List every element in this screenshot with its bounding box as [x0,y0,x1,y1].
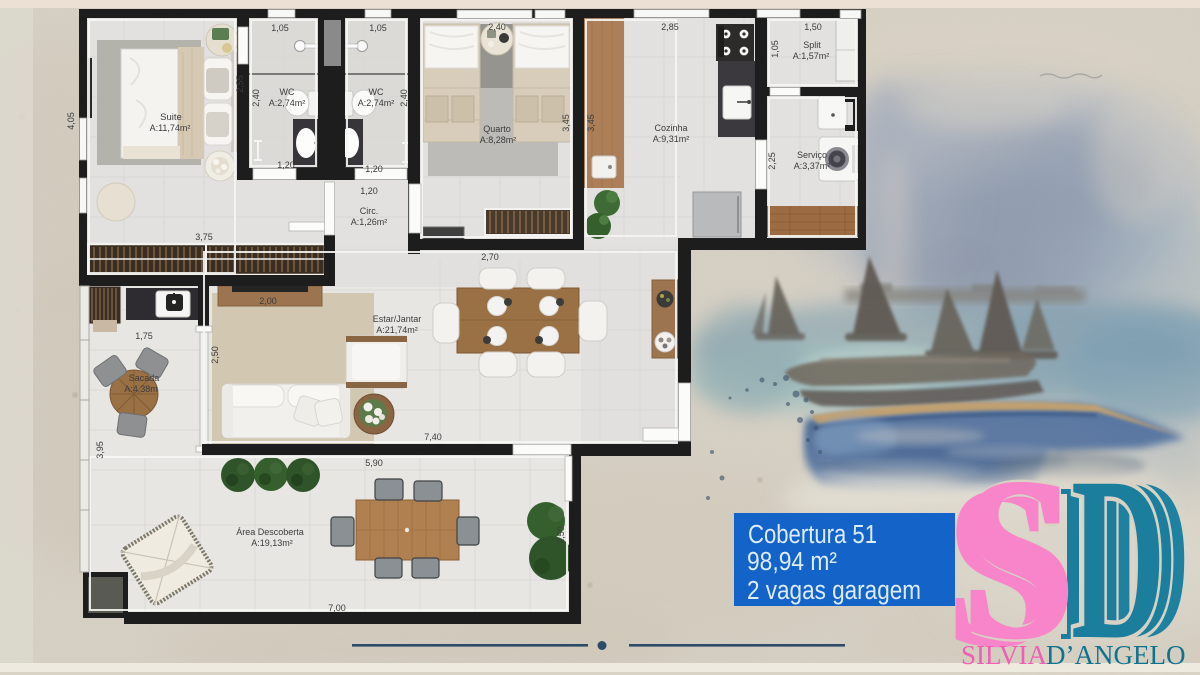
svg-text:2,50: 2,50 [210,346,220,364]
svg-text:1,05: 1,05 [369,23,387,33]
svg-text:1,75: 1,75 [135,331,153,341]
svg-text:3,75: 3,75 [195,232,213,242]
svg-text:1,05: 1,05 [271,23,289,33]
svg-text:2,00: 2,00 [259,296,277,306]
svg-text:1,05: 1,05 [770,40,780,58]
svg-text:1,20: 1,20 [277,160,295,170]
svg-text:SILVIA: SILVIA [961,640,1048,670]
svg-text:A:11,74m²: A:11,74m² [150,123,191,133]
svg-text:WC: WC [280,87,295,97]
svg-text:A:21,74m²: A:21,74m² [376,325,418,335]
svg-text:A:2,74m²: A:2,74m² [358,98,395,108]
svg-text:WC: WC [369,87,384,97]
svg-text:1,20: 1,20 [360,186,378,196]
svg-text:3,95: 3,95 [95,441,105,459]
svg-text:Circ.: Circ. [360,206,379,216]
svg-text:Cozinha: Cozinha [654,123,687,133]
svg-text:3,45: 3,45 [586,114,596,132]
svg-text:Cobertura 51: Cobertura 51 [748,521,877,549]
svg-text:A:3,37m²: A:3,37m² [794,161,831,171]
svg-text:2,85: 2,85 [661,22,679,32]
svg-text:4,05: 4,05 [66,112,76,130]
svg-text:Suite: Suite [160,112,182,123]
svg-text:Área Descoberta: Área Descoberta [236,527,304,537]
svg-text:A:1,57m²: A:1,57m² [793,51,830,61]
svg-text:A:1,26m²: A:1,26m² [351,217,388,227]
svg-text:Quarto: Quarto [483,124,511,134]
svg-text:2,70: 2,70 [481,252,499,262]
svg-text:3,45: 3,45 [561,114,571,132]
svg-text:1,50: 1,50 [804,22,822,32]
svg-text:98,94 m²: 98,94 m² [747,548,837,576]
svg-text:2,40: 2,40 [488,22,506,32]
svg-text:2,40: 2,40 [251,89,261,107]
svg-text:2 vagas garagem: 2 vagas garagem [747,577,921,605]
svg-text:2,25: 2,25 [767,152,777,170]
svg-text:A:19,13m²: A:19,13m² [251,538,293,548]
svg-text:D: D [1071,430,1166,675]
svg-text:5,90: 5,90 [365,458,383,468]
svg-text:D’ANGELO: D’ANGELO [1046,640,1185,670]
svg-text:A:8,28m²: A:8,28m² [480,135,517,145]
svg-text:1,20: 1,20 [365,164,383,174]
svg-text:A:2,74m²: A:2,74m² [269,98,306,108]
svg-text:Serviço: Serviço [797,150,827,160]
svg-text:2,55: 2,55 [235,75,245,93]
svg-text:Estar/Jantar: Estar/Jantar [373,314,422,324]
svg-text:A:9,31m²: A:9,31m² [653,134,690,144]
svg-text:2,40: 2,40 [399,89,409,107]
svg-text:Sacada: Sacada [129,373,160,383]
svg-text:S: S [966,428,1077,675]
svg-text:Split: Split [803,40,821,50]
svg-text:7,40: 7,40 [424,432,442,442]
svg-text:A:4,38m: A:4,38m [124,384,158,394]
svg-text:2,50: 2,50 [556,526,566,544]
svg-text:7,00: 7,00 [328,603,346,613]
